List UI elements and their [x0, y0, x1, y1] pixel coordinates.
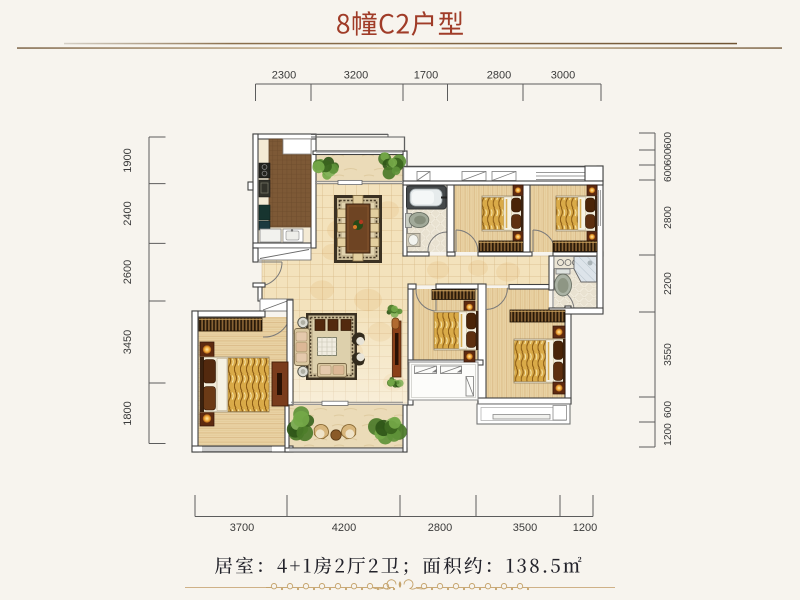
svg-text:1200: 1200	[663, 423, 674, 446]
svg-text:2200: 2200	[663, 272, 674, 295]
svg-text:4200: 4200	[332, 522, 356, 534]
svg-text:1200: 1200	[573, 522, 597, 534]
svg-text:1700: 1700	[414, 70, 438, 82]
svg-text:600: 600	[663, 132, 674, 149]
svg-text:3700: 3700	[230, 522, 254, 534]
svg-text:2600: 2600	[122, 260, 134, 284]
svg-text:3000: 3000	[551, 70, 575, 82]
svg-text:2800: 2800	[428, 522, 452, 534]
svg-text:600: 600	[663, 165, 674, 182]
svg-text:2800: 2800	[487, 70, 511, 82]
svg-text:3550: 3550	[663, 343, 674, 366]
svg-text:600: 600	[663, 401, 674, 418]
svg-text:3500: 3500	[513, 522, 537, 534]
svg-text:600: 600	[663, 148, 674, 165]
svg-text:3450: 3450	[122, 330, 134, 354]
svg-text:2300: 2300	[272, 70, 296, 82]
svg-text:3200: 3200	[344, 70, 368, 82]
svg-text:2400: 2400	[122, 201, 134, 225]
svg-text:1900: 1900	[122, 148, 134, 172]
svg-text:1800: 1800	[122, 401, 134, 425]
svg-text:2800: 2800	[663, 206, 674, 229]
